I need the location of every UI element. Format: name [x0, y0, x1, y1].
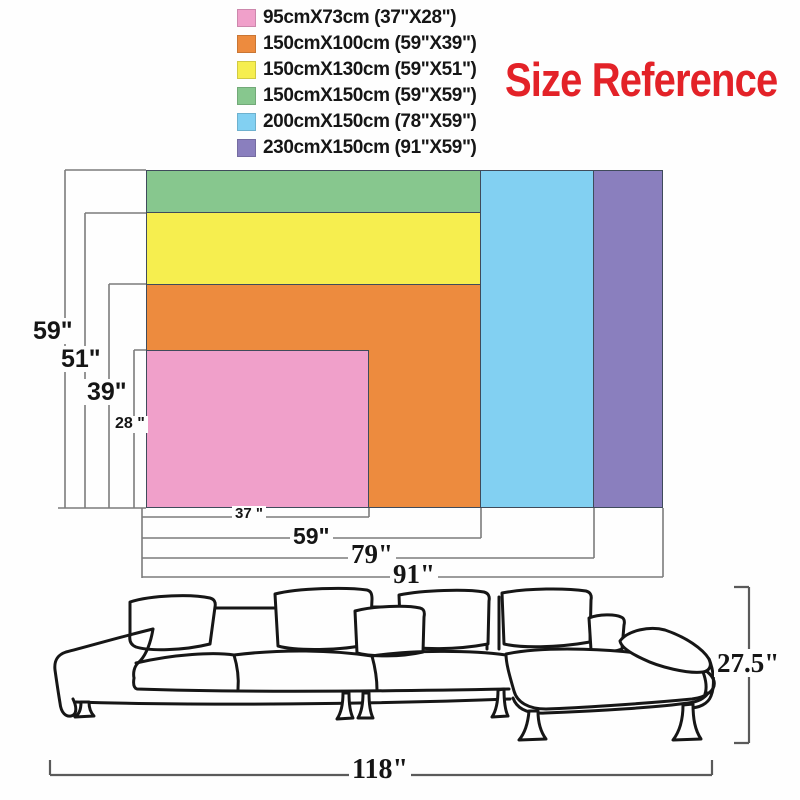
- width-label-37in: 37 ": [232, 506, 266, 522]
- sofa-height-label: 27.5": [714, 649, 782, 677]
- width-label-59in: 59": [290, 524, 333, 548]
- height-label-51in: 51": [58, 346, 104, 372]
- height-label-59in: 59": [30, 318, 76, 344]
- width-label-79in: 79": [348, 540, 396, 568]
- width-label-91in: 91": [390, 560, 438, 588]
- size-reference-infographic: 95cmX73cm (37"X28") 150cmX100cm (59"X39"…: [0, 0, 800, 800]
- height-label-28in: 28 ": [112, 416, 148, 433]
- height-label-39in: 39": [84, 379, 130, 405]
- sofa-illustration: [55, 588, 714, 740]
- sofa-back-pillows: [130, 588, 625, 656]
- sofa-width-label: 118": [349, 755, 411, 784]
